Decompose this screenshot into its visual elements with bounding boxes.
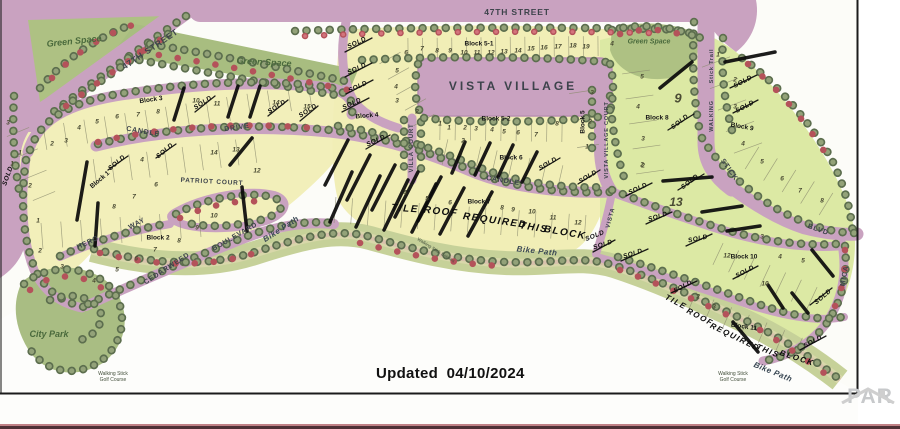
par-watermark: PAR <box>840 386 900 407</box>
plat-map-page: 47TH STREET47TH STREETCANDLEDRIVECANDLEV… <box>0 0 900 429</box>
bottom-border-bar <box>0 424 900 429</box>
updated-date-label: Updated 04/10/2024 <box>376 365 525 382</box>
par-roof-icon <box>840 386 896 404</box>
vista-village-plaza <box>418 58 612 116</box>
